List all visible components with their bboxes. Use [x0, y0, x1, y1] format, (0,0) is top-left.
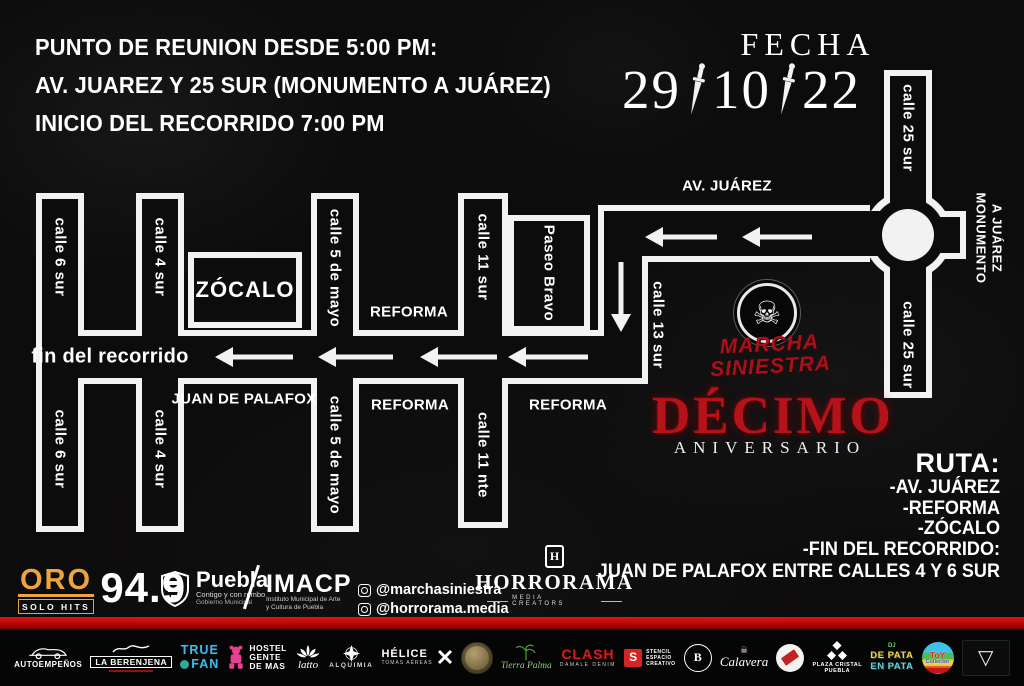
- plaza-cristal-icon: [826, 641, 848, 661]
- sponsor-clash: CLASH DAMALE DENIM: [560, 647, 616, 668]
- label-monumento-a-juarez: A JUÁREZ: [990, 204, 1005, 273]
- sponsor-label: DE MAS: [249, 662, 286, 671]
- street-label-calle-6-sur: calle 6 sur: [52, 410, 69, 489]
- sponsor-label: ToY: [930, 651, 945, 659]
- ruta-item: -AV. JUÁREZ: [592, 478, 1001, 499]
- sponsor-true-fan: TRUE FAN: [180, 644, 219, 671]
- decimo-title: DÉCIMO: [648, 386, 898, 446]
- sponsor-label: FAN: [191, 658, 219, 671]
- sponsor-label: TRUE: [181, 644, 219, 657]
- marcha-siniestra-wordmark: MARCHA SINIESTRA: [689, 330, 851, 382]
- street-label-calle-25-sur: calle 25 sur: [900, 301, 917, 389]
- sponsor-red-circle-badge: [776, 644, 804, 672]
- date-day: 29: [622, 60, 681, 120]
- shield-icon: [160, 571, 190, 607]
- sponsor-label: AUTOEMPEÑOS: [14, 661, 82, 669]
- sponsor-stencil: S STENCIL ESPACIO CREATIVO: [624, 649, 675, 667]
- stencil-s-icon: S: [624, 649, 642, 667]
- oro-tagline: SOLO HITS: [18, 599, 94, 614]
- sponsor-helice: HÉLICE TOMAS AÉREAS: [381, 649, 452, 666]
- meeting-line-1: PUNTO DE REUNION DESDE 5:00 PM:: [35, 28, 551, 66]
- puebla-tagline: Contigo y con rumbo: [196, 590, 268, 599]
- sponsor-label: HÉLICE: [381, 649, 432, 661]
- propeller-x-icon: [437, 649, 453, 665]
- street-label-reforma: REFORMA: [529, 397, 607, 414]
- horrorama-wordmark: HORRORAMA: [475, 571, 633, 593]
- sponsor-label: Collector: [926, 659, 950, 665]
- event-date: 29 10 22: [622, 60, 861, 120]
- ruta-item: -ZÓCALO: [592, 519, 1001, 540]
- street-label-calle-5-de-mayo: calle 5 de mayo: [327, 209, 344, 327]
- inverted-triangle-icon: ▽: [962, 640, 1010, 676]
- sponsor-latto: latto: [295, 644, 321, 672]
- park-label-paseo-bravo: Paseo Bravo: [541, 225, 558, 321]
- sponsor-label: DE PATA: [870, 651, 913, 661]
- horrorama-monogram: H: [545, 545, 564, 568]
- street-label-juan-de-palafox: JUAN DE PALAFOX: [171, 391, 316, 408]
- knife-icon: [772, 60, 802, 120]
- scribble-icon: [111, 643, 151, 655]
- star-ornament-icon: [343, 645, 360, 662]
- label-fin-del-recorrido: fin del recorrido: [31, 346, 188, 369]
- monumento-roundabout: [882, 209, 934, 261]
- street-label-calle-4-sur: calle 4 sur: [152, 218, 169, 297]
- red-divider-bar: [0, 617, 1024, 629]
- ruta-detail: JUAN DE PALAFOX ENTRE CALLES 4 Y 6 SUR: [592, 561, 1001, 583]
- dj-icon: DJ: [888, 643, 896, 649]
- meeting-line-3: INICIO DEL RECORRIDO 7:00 PM: [35, 104, 551, 142]
- sponsor-label: ESPACIO: [646, 655, 675, 661]
- imacp-subtext: Instituto Municipal de Arte: [266, 596, 352, 604]
- knife-icon: [682, 60, 712, 120]
- sponsor-alquimia: ALQUIMIA: [329, 645, 373, 670]
- street-label-reforma: REFORMA: [371, 397, 449, 414]
- street-label-reforma: REFORMA: [370, 304, 448, 321]
- sponsor-label: Tierra Palma: [501, 662, 552, 672]
- sponsor-plaza-cristal: PLAZA CRISTAL PUEBLA: [813, 641, 863, 674]
- street-label-calle-11-nte: calle 11 nte: [475, 412, 492, 498]
- sponsor-la-berenjena: LA BERENJENA: [90, 643, 172, 673]
- sponsor-strip: AUTOEMPEÑOS LA BERENJENA TRUE FAN HOST: [0, 629, 1024, 686]
- sponsor-sublabel: TOMAS AÉREAS: [381, 661, 432, 666]
- date-month: 10: [712, 60, 771, 120]
- red-bar-shape: [781, 649, 799, 666]
- sponsor-sublabel: DAMALE DENIM: [560, 663, 616, 668]
- sponsor-toy-collector: ToY Collector: [922, 642, 954, 674]
- meeting-info: PUNTO DE REUNION DESDE 5:00 PM: AV. JUAR…: [35, 28, 551, 142]
- circle-b-badge: B: [684, 644, 712, 672]
- meeting-line-2: AV. JUAREZ Y 25 SUR (MONUMENTO A JUÁREZ): [35, 66, 551, 104]
- sponsor-label: PUEBLA: [813, 668, 863, 674]
- instagram-icon: [358, 584, 371, 597]
- plaza-label-zocalo: ZÓCALO: [196, 277, 295, 303]
- street-label-calle-13-sur: calle 13 sur: [650, 281, 667, 369]
- sponsor-label: latto: [298, 660, 318, 672]
- horrorama-logo: H HORRORAMA MEDIA CREATORS: [487, 545, 622, 607]
- sponsor-hostel-gente-de-mas: HOSTEL GENTE DE MAS: [227, 644, 286, 671]
- sponsor-coin-emblem: [461, 642, 493, 674]
- ruta-panel: RUTA: -AV. JUÁREZ -REFORMA -ZÓCALO -FIN …: [570, 448, 1000, 583]
- sponsor-label: CREATIVO: [646, 661, 675, 667]
- sponsor-calavera: ☠ Calavera: [720, 646, 768, 669]
- imacp-wordmark: IMACP: [266, 572, 352, 596]
- sponsor-label: EN PATA: [870, 662, 913, 672]
- red-circle-badge-icon: [776, 644, 804, 672]
- sponsor-label: ALQUIMIA: [329, 663, 373, 670]
- red-band: [922, 668, 954, 673]
- circle-icon: [180, 660, 189, 669]
- sponsor-label: Calavera: [720, 655, 768, 669]
- street-label-calle-25-sur: calle 25 sur: [900, 84, 917, 172]
- ruta-item: -REFORMA: [592, 499, 1001, 520]
- street-label-calle-6-sur: calle 6 sur: [52, 218, 69, 297]
- sponsor-autoempenos: AUTOEMPEÑOS: [14, 645, 82, 669]
- coin-emblem-icon: [461, 642, 493, 674]
- rainbow-circle-icon: ToY Collector: [922, 642, 954, 674]
- label-monumento-a-juarez: MONUMENTO: [974, 193, 989, 284]
- puebla-subtext: Gobierno Municipal: [196, 599, 268, 607]
- ruta-title: RUTA:: [570, 448, 1000, 478]
- horrorama-tagline: MEDIA CREATORS: [487, 595, 622, 607]
- imacp-subtext: y Cultura de Puebla: [266, 604, 352, 612]
- bear-icon: [227, 644, 245, 670]
- car-icon: [26, 645, 70, 660]
- skull-icon: ☠: [740, 646, 748, 654]
- ruta-item: -FIN DEL RECORRIDO:: [592, 540, 1001, 561]
- street-label-av-juarez: AV. JUÁREZ: [682, 178, 772, 195]
- palm-tree-icon: [512, 643, 540, 661]
- event-poster: calle 6 sur calle 6 sur calle 4 sur call…: [0, 0, 1024, 686]
- skull-icon: ☠: [753, 297, 782, 329]
- sponsor-tierra-palma: Tierra Palma: [501, 643, 552, 672]
- red-underline: [109, 670, 153, 672]
- street-label-calle-11-sur: calle 11 sur: [475, 214, 492, 301]
- imacp-logo: IMACP Instituto Municipal de Arte y Cult…: [266, 572, 352, 612]
- lotus-icon: [295, 644, 321, 659]
- street-label-calle-4-sur: calle 4 sur: [152, 410, 169, 489]
- date-year: 22: [802, 60, 861, 120]
- sponsor-bombilla: B: [684, 644, 712, 672]
- oro-wordmark: ORO: [18, 566, 94, 597]
- sponsor-label: LA BERENJENA: [90, 656, 172, 669]
- instagram-icon: [358, 603, 371, 616]
- sponsor-de-pata-en-pata: DJ DE PATA EN PATA: [870, 643, 913, 671]
- street-label-calle-5-de-mayo: calle 5 de mayo: [327, 396, 344, 514]
- puebla-wordmark: Puebla: [196, 570, 268, 590]
- sponsor-label: CLASH: [561, 647, 614, 662]
- fecha-label: FECHA: [738, 26, 878, 63]
- sponsor-triangle-emblem: ▽: [962, 640, 1010, 676]
